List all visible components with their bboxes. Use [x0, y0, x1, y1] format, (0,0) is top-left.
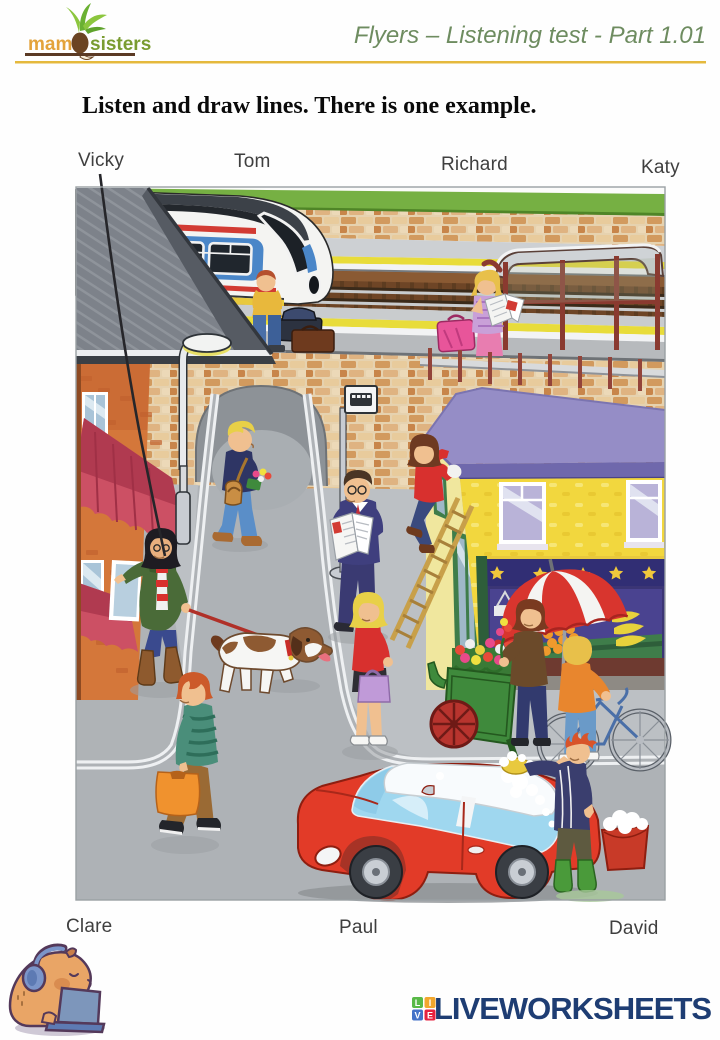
svg-text:I: I [429, 998, 432, 1008]
svg-text:L: L [415, 998, 421, 1008]
svg-text:E: E [427, 1011, 433, 1021]
svg-text:V: V [414, 1011, 420, 1021]
